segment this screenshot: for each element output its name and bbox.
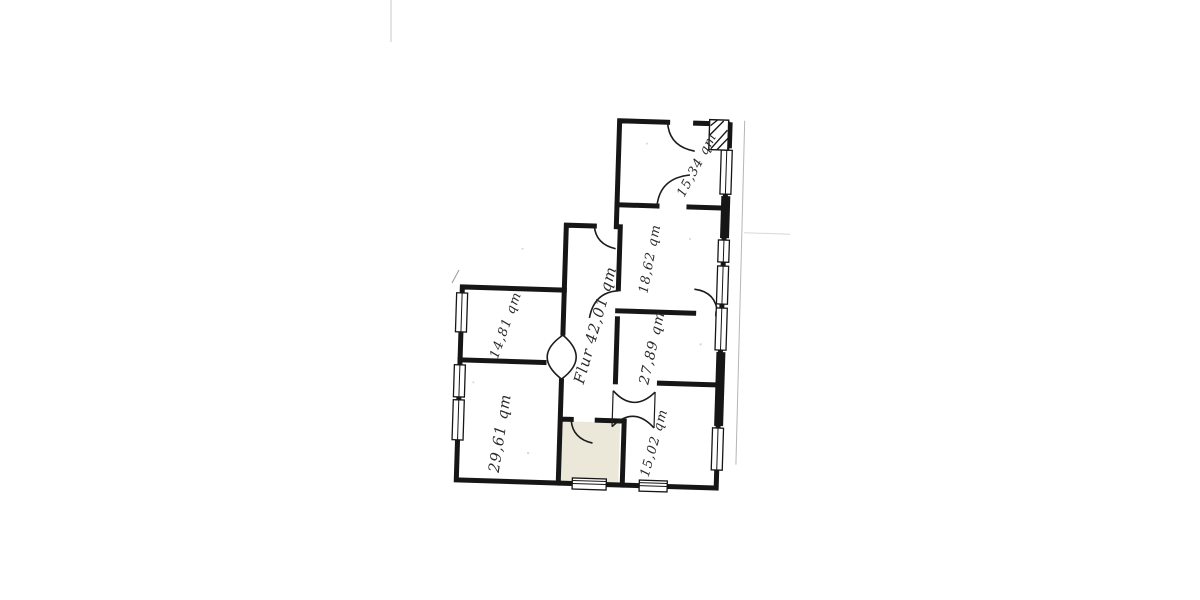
window-symbol <box>572 478 606 490</box>
scanned-floor-plan-page: Flur 42,01 qm 14,81 qm 29,61 qm 27,89 qm… <box>0 0 1200 600</box>
floor-plan-group: Flur 42,01 qm 14,81 qm 29,61 qm 27,89 qm… <box>451 112 794 496</box>
room-label-top-right: 15,34 qm <box>674 131 720 200</box>
window-symbol <box>639 480 667 492</box>
door-arc <box>667 122 696 151</box>
room-label-bottom-left: 29,61 qm <box>485 392 515 474</box>
window-symbol <box>716 266 728 304</box>
scan-noise-dot <box>522 248 524 250</box>
window-symbol <box>452 400 464 440</box>
scan-noise-dot <box>699 343 701 345</box>
window-symbol <box>455 293 467 332</box>
double-door-leaf <box>613 391 655 403</box>
window-pane-line <box>723 240 724 262</box>
window-symbol <box>711 428 723 470</box>
room-label-top-left: 14,81 qm <box>487 290 525 361</box>
window-symbol <box>720 150 732 194</box>
room-label-flur: Flur 42,01 qm <box>570 264 621 387</box>
window-symbol <box>715 308 727 350</box>
double-door-leaf <box>547 335 563 379</box>
scan-artifact-line <box>734 121 747 465</box>
scan-noise-dot <box>472 381 474 383</box>
door-arc <box>694 289 719 314</box>
wall-chunk <box>720 196 730 238</box>
wall-chunk <box>714 352 725 426</box>
scan-noise-dot <box>689 238 691 240</box>
room-label-right-upper: 18,62 qm <box>636 223 664 295</box>
window-symbol <box>718 240 730 262</box>
floor-plan-drawing: Flur 42,01 qm 14,81 qm 29,61 qm 27,89 qm… <box>0 0 1200 600</box>
scan-noise-dot <box>646 143 648 145</box>
highlighted-room-fill <box>560 421 620 483</box>
door-arc <box>594 226 617 249</box>
window-symbol <box>453 365 465 397</box>
scan-noise-dot <box>527 452 529 454</box>
room-label-right-middle: 27,89 qm <box>636 310 668 387</box>
scan-artifact-mark <box>452 270 459 283</box>
scan-artifact-line <box>744 233 790 234</box>
